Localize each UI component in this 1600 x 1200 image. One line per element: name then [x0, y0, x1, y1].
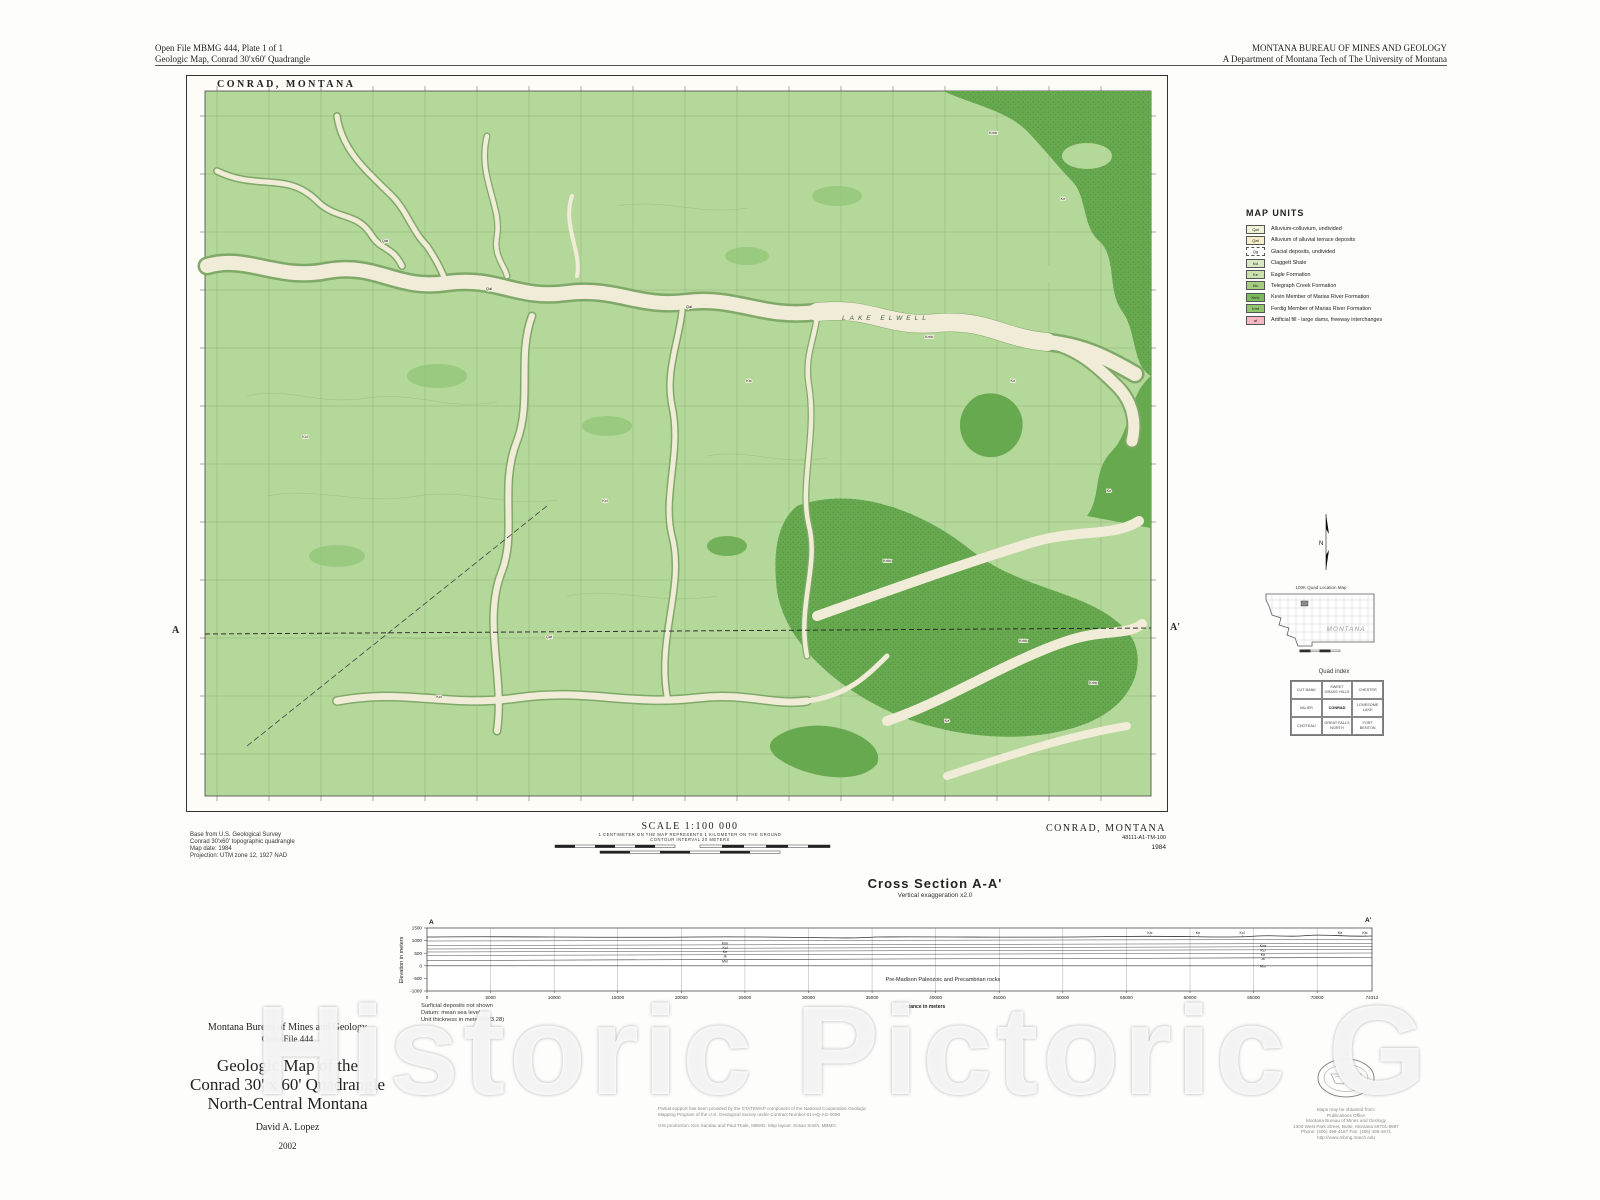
map-unit-label-Ke: Ke [1061, 196, 1067, 201]
legend-label: Alluvium-colluvium, undivided [1271, 226, 1342, 232]
map-corner-block: CONRAD, MONTANA 48111-A1-TM-100 1984 [1030, 823, 1166, 851]
svg-text:1500: 1500 [412, 926, 423, 931]
geologic-map-art: LAKE ELWELL KmkKeKmkKeKmkKmkKeQalQatKclK… [187, 76, 1167, 811]
svg-text:-1000: -1000 [410, 989, 422, 994]
svg-text:5000: 5000 [485, 995, 496, 1000]
title-block: Montana Bureau of Mines and Geology Open… [170, 1022, 405, 1151]
header-rule [155, 65, 1447, 66]
map-units-legend: MAP UNITS QalAlluvium-colluvium, undivid… [1246, 208, 1416, 328]
legend-swatch-Kcl: Kcl [1246, 259, 1265, 268]
mbmg-seal [1315, 1056, 1377, 1100]
svg-text:Kmr: Kmr [1260, 944, 1267, 948]
legend-label: Glacial deposits, undivided [1271, 249, 1335, 255]
title-block-year: 2002 [170, 1141, 405, 1151]
svg-text:25000: 25000 [739, 995, 752, 1000]
title-line2: Conrad 30' x 60' Quadrangle [170, 1075, 405, 1094]
map-unit-label-Qal: Qal [486, 286, 492, 291]
quad-index-grid: CUT BANKSWEET GRASS HILLSCHESTERVALIERCO… [1290, 680, 1384, 736]
svg-text:60000: 60000 [1184, 995, 1197, 1000]
lake-elwell-label: LAKE ELWELL [842, 315, 930, 322]
map-unit-label-Kmk: Kmk [883, 558, 891, 563]
publisher-lines: Maps may be obtained from:Publications O… [1262, 1107, 1430, 1141]
svg-text:Ke: Ke [1338, 931, 1342, 935]
location-map-title: 100K Quad Location Map [1295, 585, 1347, 590]
north-label: N [1319, 541, 1323, 547]
legend-label: Eagle Formation [1271, 272, 1311, 278]
quad-cell-valier: VALIER [1291, 699, 1322, 717]
legend-swatch-Kmk: Kmk [1246, 293, 1265, 302]
legend-swatch-af: af [1246, 316, 1265, 325]
svg-text:55000: 55000 [1120, 995, 1133, 1000]
legend-item-Qg: QgGlacial deposits, undivided [1246, 248, 1416, 256]
scale-title: SCALE 1:100 000 [540, 821, 840, 832]
publisher-line: http://www.mbmg.mtech.edu [1262, 1135, 1430, 1141]
cs-note: Datum: mean sea level [421, 1010, 504, 1017]
map-unit-label-Qal: Qal [686, 304, 692, 309]
svg-text:30000: 30000 [802, 995, 815, 1000]
publisher-block: Maps may be obtained from:Publications O… [1262, 1056, 1430, 1141]
svg-text:500: 500 [414, 951, 422, 956]
cross-section-notes: Surficial deposits not shown Datum: mean… [421, 1003, 504, 1023]
map-unit-label-Kmk: Kmk [989, 130, 997, 135]
svg-text:0: 0 [426, 995, 429, 1000]
legend-swatch-Qal: Qal [1246, 225, 1265, 234]
scale-block: SCALE 1:100 000 1 CENTIMETER ON THE MAP … [540, 821, 840, 861]
svg-text:1000: 1000 [412, 938, 423, 943]
legend-label: Ferdig Member of Marias River Formation [1271, 306, 1371, 312]
legend-item-Kcl: KclClaggett Shale [1246, 259, 1416, 267]
legend-label: Alluvium of alluvial terrace deposits [1271, 237, 1355, 243]
base-credit-line: Map date: 1984 [190, 846, 295, 853]
svg-text:20000: 20000 [675, 995, 688, 1000]
svg-text:Ktc: Ktc [1362, 931, 1367, 935]
svg-text:45000: 45000 [993, 995, 1006, 1000]
legend-item-Qat: QatAlluvium of alluvial terrace deposits [1246, 236, 1416, 244]
quad-cell-lonesome-lake: LONESOME LAKE [1352, 699, 1383, 717]
state-location-map: 100K Quad Location Map MONTANA [1260, 582, 1382, 656]
header-right: MONTANA BUREAU OF MINES AND GEOLOGY A De… [1045, 43, 1447, 65]
title-line1: Geologic Map of the [170, 1056, 405, 1075]
corner-year: 1984 [1030, 844, 1166, 851]
map-unit-label-Kmk: Kmk [1019, 638, 1027, 643]
map-unit-label-Qat: Qat [546, 634, 553, 639]
header-left-line1: Open File MBMG 444, Plate 1 of 1 [155, 43, 310, 54]
quad-cell-cut-bank: CUT BANK [1291, 681, 1322, 699]
legend-label: Artificial fill - large dams, freeway in… [1271, 317, 1382, 323]
title-block-author: David A. Lopez [170, 1122, 405, 1133]
legend-swatch-Ktc: Ktc [1246, 281, 1265, 290]
legend-item-Qal: QalAlluvium-colluvium, undivided [1246, 225, 1416, 233]
map-unit-label-Kmk: Kmk [925, 334, 933, 339]
legend-title: MAP UNITS [1246, 208, 1416, 218]
map-unit-label-Ktc: Ktc [746, 378, 752, 383]
state-label: MONTANA [1326, 626, 1365, 633]
cross-section-title: Cross Section A-A' [635, 876, 1235, 891]
svg-text:-500: -500 [413, 976, 423, 981]
quad-cell-conrad: CONRAD [1322, 699, 1353, 717]
quad-cell-choteau: CHOTEAU [1291, 717, 1322, 735]
map-unit-label-Qat: Qat [382, 238, 389, 243]
base-credit-line: Conrad 30'x60' topographic quadrangle [190, 839, 295, 846]
svg-text:Kcl: Kcl [1240, 931, 1245, 935]
quad-cell-chester: CHESTER [1352, 681, 1383, 699]
cs-basement-label: Pre-Madison Paleozoic and Precambrian ro… [886, 977, 1001, 983]
cs-ylabel: Elevation in meters [399, 936, 405, 983]
cs-note: Unit thickness in meters (ft/3.28) [421, 1017, 504, 1024]
section-endpoint-a-prime: A' [1170, 622, 1180, 633]
legend-label: Kevin Member of Marias River Formation [1271, 294, 1369, 300]
svg-text:40000: 40000 [929, 995, 942, 1000]
header-right-line2: A Department of Montana Tech of The Univ… [1045, 54, 1447, 65]
corner-name: CONRAD, MONTANA [1030, 823, 1166, 834]
cross-section-chart: 0500010000150002000025000300003500040000… [395, 915, 1385, 1015]
cs-end-a: A [429, 919, 434, 926]
quad-cell-sweet-grass-hills: SWEET GRASS HILLS [1322, 681, 1353, 699]
svg-text:Mm: Mm [722, 960, 728, 964]
legend-label: Claggett Shale [1271, 260, 1306, 266]
cs-note: Surficial deposits not shown [421, 1003, 504, 1010]
base-map-credits: Base from U.S. Geological Survey Conrad … [190, 832, 295, 860]
legend-swatch-Kmf: Kmf [1246, 304, 1265, 313]
svg-text:0: 0 [419, 963, 422, 968]
svg-text:35000: 35000 [866, 995, 879, 1000]
map-unit-label-Ke: Ke [1107, 488, 1113, 493]
quad-cell-great-falls-north: GREAT FALLS NORTH [1322, 717, 1353, 735]
location-scalebar [1300, 650, 1340, 652]
svg-text:10000: 10000 [548, 995, 561, 1000]
svg-text:74312: 74312 [1366, 995, 1379, 1000]
svg-text:50000: 50000 [1056, 995, 1069, 1000]
base-credit-line: Base from U.S. Geological Survey [190, 832, 295, 839]
legend-item-Ke: KeEagle Formation [1246, 271, 1416, 279]
cs-end-a-prime: A' [1365, 917, 1372, 924]
map-title: CONRAD, MONTANA [217, 79, 355, 90]
title-block-org: Montana Bureau of Mines and Geology [170, 1022, 405, 1033]
map-unit-label-Ke: Ke [945, 718, 951, 723]
svg-text:15000: 15000 [611, 995, 624, 1000]
geologic-map-frame: LAKE ELWELL KmkKeKmkKeKmkKmkKeQalQatKclK… [186, 75, 1168, 812]
corner-id: 48111-A1-TM-100 [1030, 835, 1166, 841]
legend-item-af: afArtificial fill - large dams, freeway … [1246, 316, 1416, 324]
svg-text:Mm: Mm [1260, 965, 1266, 969]
title-block-open-file: Open File 444 [170, 1034, 405, 1044]
map-unit-label-Kcl: Kcl [302, 434, 308, 439]
legend-label: Telegraph Creek Formation [1271, 283, 1336, 289]
legend-swatch-Qat: Qat [1246, 236, 1265, 245]
title-line3: North-Central Montana [170, 1094, 405, 1113]
quad-location-marker [1301, 601, 1308, 606]
svg-text:65000: 65000 [1247, 995, 1260, 1000]
map-unit-label-Kcl: Kcl [436, 694, 442, 699]
north-arrow: N [1318, 512, 1334, 572]
legend-rows: QalAlluvium-colluvium, undividedQatAlluv… [1246, 225, 1416, 324]
credits-gis: GIS production: Ken Sandau and Paul Thal… [658, 1123, 908, 1129]
header-left-line2: Geologic Map, Conrad 30'x60' Quadrangle [155, 54, 310, 65]
cross-section-subtitle: Vertical exaggeration x2.0 [635, 892, 1235, 899]
svg-text:Ktc: Ktc [1147, 931, 1152, 935]
legend-swatch-Ke: Ke [1246, 270, 1265, 279]
scale-bars [540, 842, 840, 856]
map-unit-label-Kcl: Kcl [602, 498, 608, 503]
legend-item-Kmf: KmfFerdig Member of Marias River Formati… [1246, 305, 1416, 313]
svg-text:70000: 70000 [1311, 995, 1324, 1000]
header-right-line1: MONTANA BUREAU OF MINES AND GEOLOGY [1045, 43, 1447, 54]
legend-item-Ktc: KtcTelegraph Creek Formation [1246, 282, 1416, 290]
map-unit-label-Ke: Ke [1011, 378, 1017, 383]
svg-text:Ke: Ke [1196, 931, 1200, 935]
cs-xlabel: Distance in meters [901, 1004, 946, 1010]
quad-cell-fort-benton: FORT BENTON [1352, 717, 1383, 735]
header-left: Open File MBMG 444, Plate 1 of 1 Geologi… [155, 43, 310, 65]
section-endpoint-a: A [172, 625, 179, 636]
quad-index-title: Quad index [1288, 669, 1380, 675]
base-credit-line: Projection: UTM zone 12, 1927 NAD [190, 853, 295, 860]
legend-item-Kmk: KmkKevin Member of Marias River Formatio… [1246, 293, 1416, 301]
map-unit-label-Kmk: Kmk [1089, 680, 1097, 685]
legend-swatch-Qg: Qg [1246, 247, 1265, 256]
support-credits: Partial support has been provided by the… [658, 1106, 908, 1129]
